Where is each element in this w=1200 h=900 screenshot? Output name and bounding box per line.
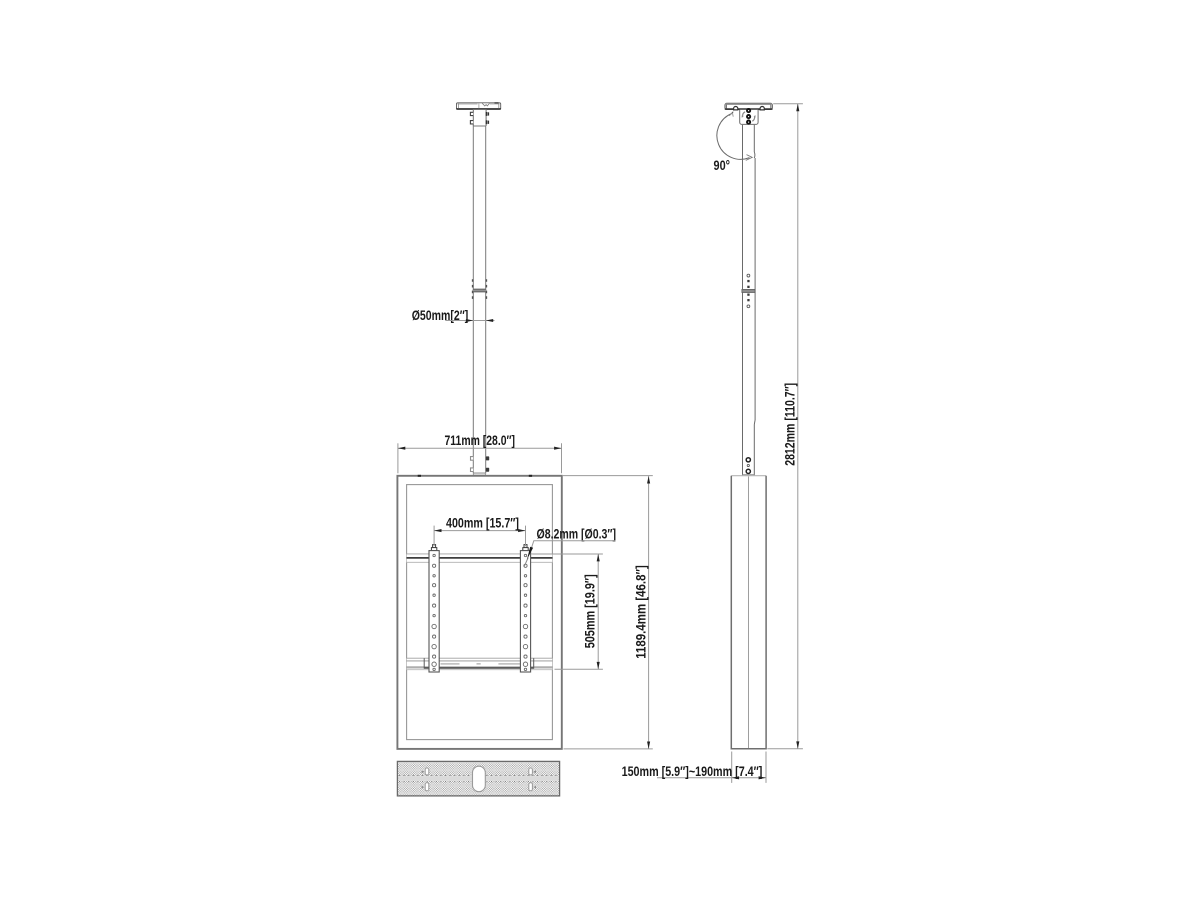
svg-text:711mm [28.0″]: 711mm [28.0″] bbox=[445, 433, 516, 448]
svg-text:505mm [19.9″]: 505mm [19.9″] bbox=[583, 574, 598, 648]
svg-text:150mm [5.9″]~190mm [7.4″]: 150mm [5.9″]~190mm [7.4″] bbox=[622, 764, 763, 779]
svg-text:2812mm [110.7″]: 2812mm [110.7″] bbox=[783, 383, 798, 466]
svg-text:400mm [15.7″]: 400mm [15.7″] bbox=[446, 516, 519, 531]
svg-text:1189.4mm [46.8″]: 1189.4mm [46.8″] bbox=[633, 565, 648, 659]
svg-text:Ø8.2mm [Ø0.3″]: Ø8.2mm [Ø0.3″] bbox=[537, 526, 617, 541]
svg-text:90°: 90° bbox=[714, 158, 731, 173]
